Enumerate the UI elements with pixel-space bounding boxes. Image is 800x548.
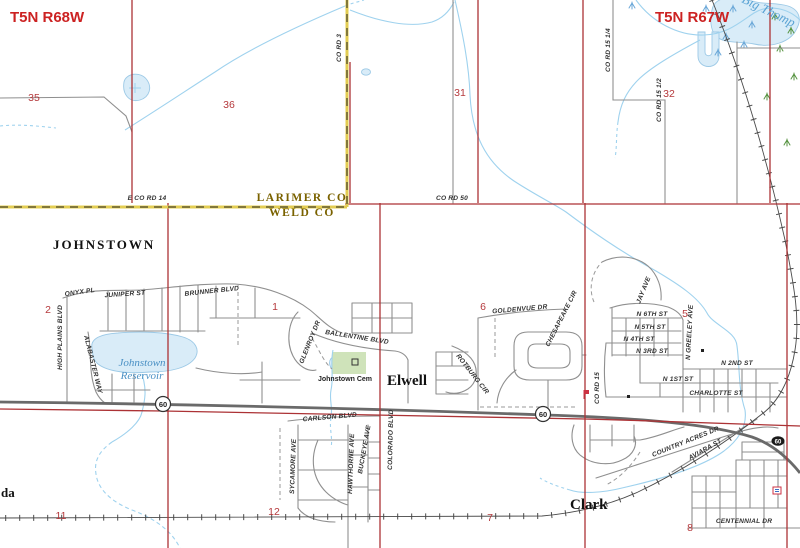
- shield-60-label: 60: [159, 400, 167, 409]
- map-canvas: 60 60 60 T5N R68W T5N R67W 35 36 31 32 2…: [0, 0, 800, 548]
- label-town-johnstown: JOHNSTOWN: [53, 237, 155, 252]
- label-street-charlotte: CHARLOTTE ST: [689, 390, 743, 397]
- label-street-n2: N 2ND ST: [721, 360, 753, 367]
- label-street-glenroy: GLENROY DR: [298, 320, 322, 365]
- label-township-left: T5N R68W: [10, 9, 85, 26]
- label-street-n3: N 3RD ST: [636, 348, 668, 355]
- shield-60-label: 60: [539, 410, 547, 419]
- label-larimer-county: LARIMER CO: [257, 192, 348, 204]
- label-co-rd-3: CO RD 3: [336, 34, 343, 62]
- label-street-n4: N 4TH ST: [624, 336, 656, 343]
- label-street-centennial: CENTENNIAL DR: [716, 518, 772, 525]
- cemetery-area: [332, 352, 366, 374]
- landmark-dot: [701, 349, 704, 352]
- label-co-rd-15: CO RD 15: [594, 372, 601, 404]
- label-section-12: 12: [268, 506, 280, 518]
- label-town-elwell: Elwell: [387, 373, 427, 389]
- streams-layer: [0, 0, 800, 548]
- building-symbol: [773, 487, 781, 494]
- u-shaped-pond: [698, 32, 719, 67]
- label-e-co-rd-14: E CO RD 14: [128, 195, 167, 202]
- county-line: [0, 0, 347, 207]
- label-weld-county: WELD CO: [269, 207, 335, 219]
- county-road-map: 60 60 60 T5N R68W T5N R67W 35 36 31 32 2…: [0, 0, 800, 548]
- label-street-high-plains: HIGH PLAINS BLVD: [57, 305, 64, 370]
- section-roads-layer: [0, 0, 800, 548]
- label-street-onyx: ONYX PL: [64, 287, 95, 298]
- pond: [362, 69, 371, 75]
- label-street-n6: N 6TH ST: [637, 311, 669, 318]
- pond: [124, 74, 150, 100]
- label-street-n5: N 5TH ST: [635, 324, 667, 331]
- label-street-goldenvue: GOLDENVUE DR: [492, 304, 548, 316]
- label-johnstown-cemetery: Johnstown Cem: [318, 376, 372, 383]
- railroad: [0, 0, 797, 518]
- label-street-buckeye: BUCKEYE AVE: [357, 424, 372, 474]
- label-reservoir-line1: Johnstown: [118, 357, 166, 369]
- highway-60-shield: 60: [536, 407, 551, 422]
- label-section-32: 32: [663, 88, 675, 100]
- label-section-7: 7: [487, 512, 493, 524]
- label-township-right: T5N R67W: [655, 9, 730, 26]
- shield-60-label: 60: [775, 440, 782, 446]
- label-section-8: 8: [687, 522, 693, 534]
- label-street-n1: N 1ST ST: [663, 376, 694, 383]
- label-street-brunner: BRUNNER BLVD: [184, 285, 239, 298]
- label-reservoir-line2: Reservoir: [120, 370, 164, 382]
- label-section-2: 2: [45, 304, 51, 316]
- label-section-11: 11: [56, 510, 67, 522]
- labels-layer: T5N R68W T5N R67W 35 36 31 32 2 1 6 5 11…: [1, 0, 798, 534]
- label-street-chesapeake: CHESAPEAKE CIR: [545, 290, 579, 348]
- label-street-colorado: COLORADO BLVD: [387, 409, 395, 470]
- label-street-sycamore: SYCAMORE AVE: [289, 438, 298, 494]
- label-street-juniper: JUNIPER ST: [104, 290, 146, 300]
- label-co-rd-50: CO RD 50: [436, 195, 468, 202]
- label-section-36: 36: [223, 99, 235, 111]
- label-street-jay: JAY AVE: [635, 276, 652, 305]
- label-section-31: 31: [454, 87, 466, 99]
- label-co-rd-15-half: CO RD 15 1/2: [656, 78, 663, 122]
- label-street-hawthorne: HAWTHORNE AVE: [347, 433, 356, 494]
- highway-60-shield: 60: [156, 397, 171, 412]
- label-section-1: 1: [272, 301, 278, 313]
- landmark-dot: [627, 395, 630, 398]
- label-section-35: 35: [28, 92, 40, 104]
- label-town-partial: da: [1, 485, 15, 500]
- label-town-clark: Clark: [570, 497, 608, 513]
- label-section-6: 6: [480, 301, 486, 313]
- roads-minor-layer: [0, 0, 800, 548]
- highway-60-oval-shield: 60: [772, 436, 785, 446]
- label-co-rd-15-quarter: CO RD 15 1/4: [605, 28, 612, 72]
